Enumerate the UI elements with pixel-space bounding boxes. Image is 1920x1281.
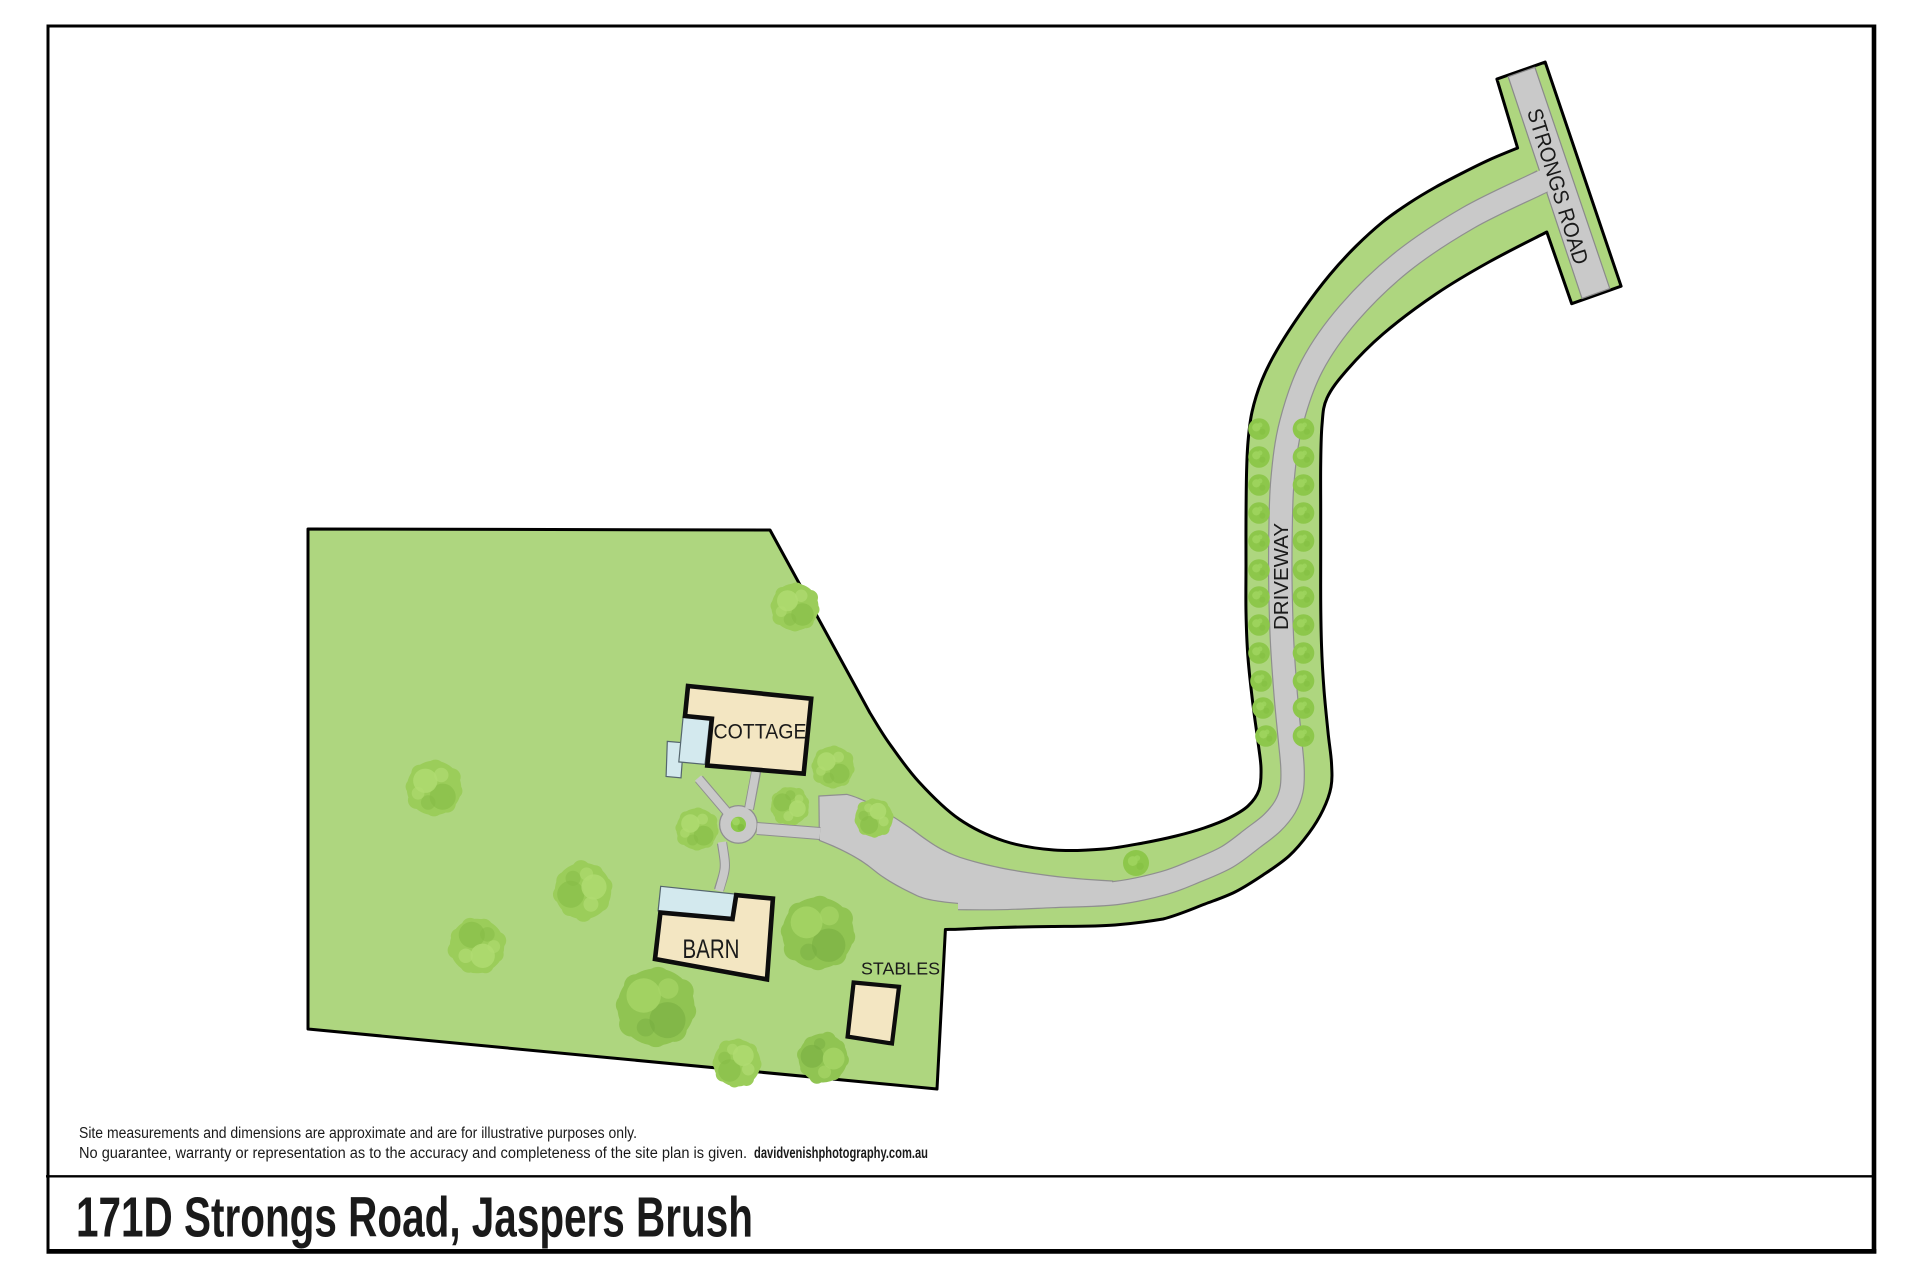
svg-text:BARN: BARN [683,934,740,964]
svg-text:No guarantee, warranty or repr: No guarantee, warranty or representation… [79,1145,928,1162]
svg-text:Site measurements and dimensio: Site measurements and dimensions are app… [79,1125,637,1142]
svg-text:STABLES: STABLES [861,959,940,979]
svg-text:DRIVEWAY: DRIVEWAY [1271,523,1293,630]
svg-text:COTTAGE: COTTAGE [714,720,807,744]
svg-text:171D Strongs Road, Jaspers Bru: 171D Strongs Road, Jaspers Brush [76,1186,753,1250]
